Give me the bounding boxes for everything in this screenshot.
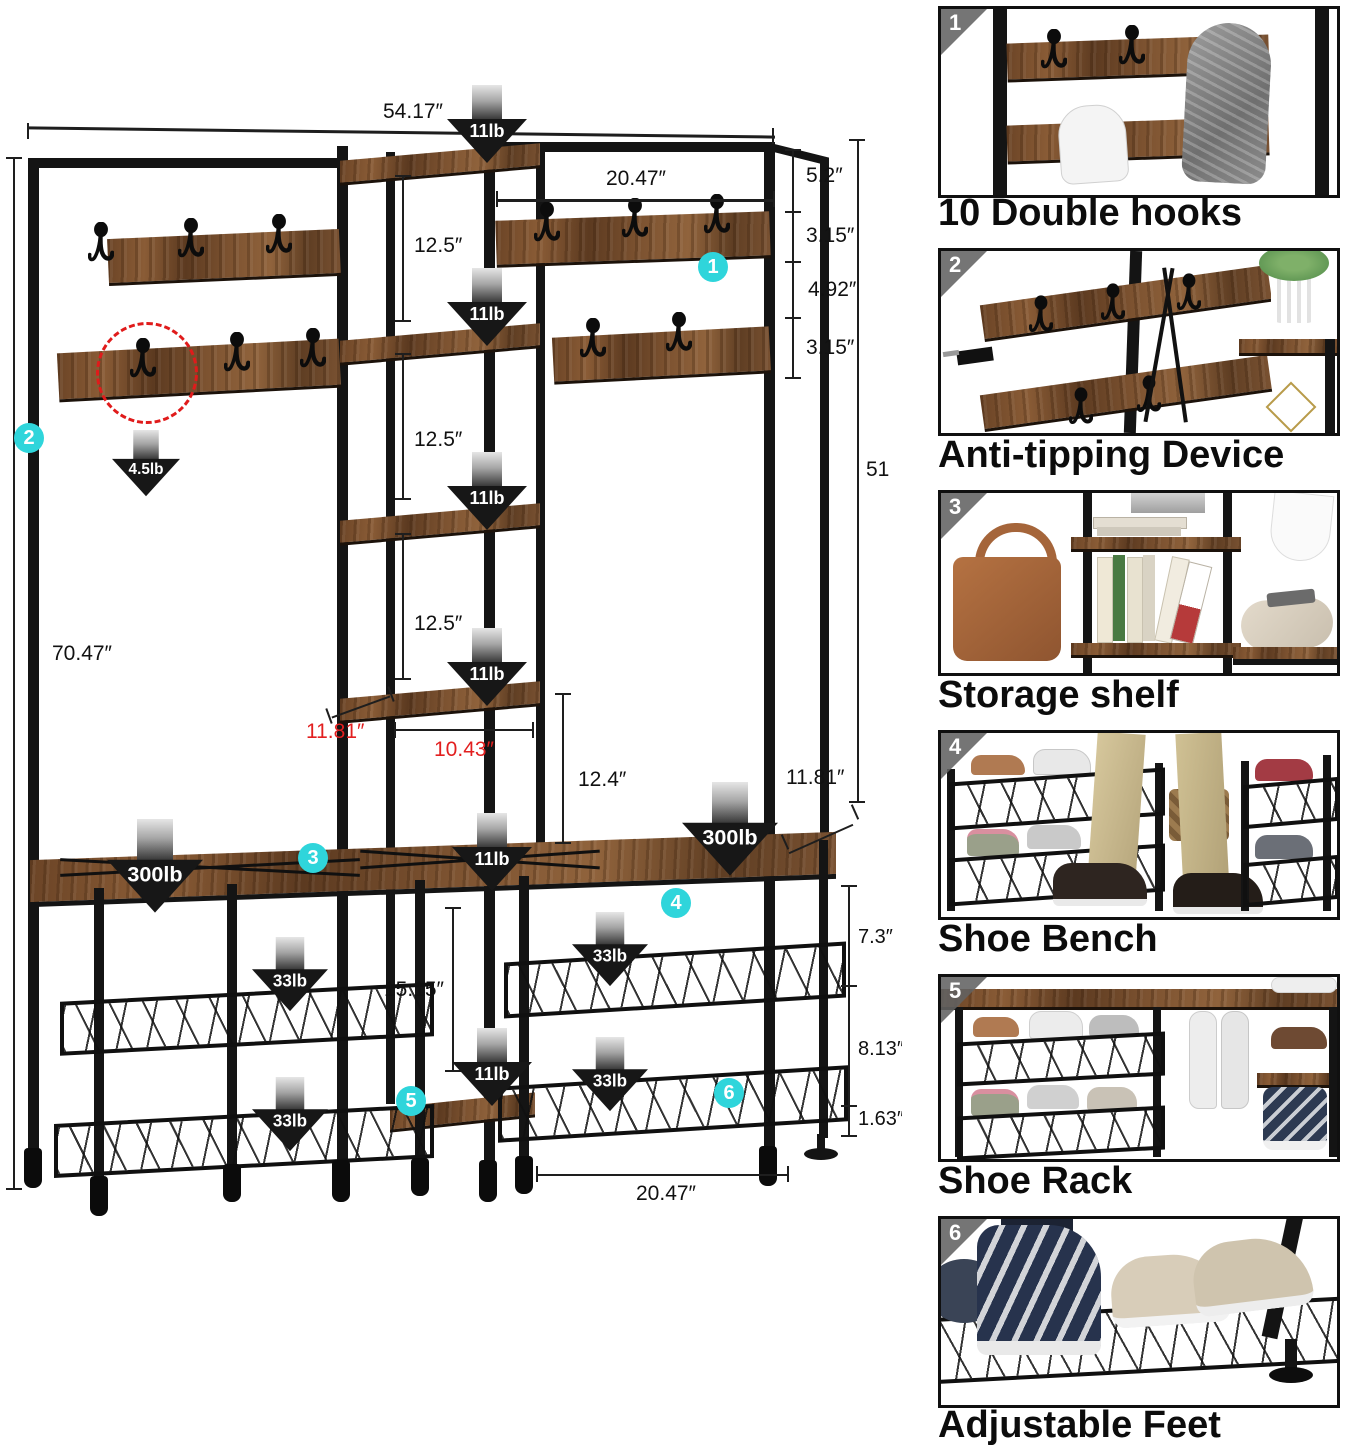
- load-label: 11lb: [447, 304, 527, 325]
- load-arrow-hook: 4.5lb: [112, 430, 180, 498]
- dim-tick: [27, 123, 29, 139]
- photo-side-shelf: [1239, 339, 1337, 356]
- dim-hook-gap: 4.92″: [808, 278, 856, 302]
- dim-tick: [849, 139, 865, 141]
- photo-wire-shelf: [957, 1032, 1165, 1087]
- coat-hook-icon: [1101, 283, 1125, 327]
- dim-tick: [536, 1166, 538, 1182]
- left-wire-shelf-lower: [54, 1104, 434, 1178]
- dim-tick: [841, 1135, 857, 1137]
- feature-card-anti-tipping: 2: [938, 248, 1340, 436]
- dim-tick: [785, 377, 801, 379]
- dim-tick: [395, 498, 411, 500]
- dim-tick: [6, 157, 22, 159]
- card-corner-badge: [941, 9, 987, 55]
- dim-tick: [787, 1166, 789, 1182]
- right-back-post: [820, 158, 829, 842]
- arrow-shaft: [472, 268, 502, 304]
- photo-deco-diamond: [1266, 382, 1317, 433]
- feature-card-shoe-rack: 5: [938, 974, 1340, 1162]
- dim-bench-seg-top: 7.3″: [858, 926, 902, 949]
- photo-shoe: [1027, 825, 1081, 849]
- photo-wire-shelf: [1243, 855, 1339, 907]
- arrow-shaft: [712, 782, 748, 825]
- feature-card-double-hooks: 1: [938, 6, 1340, 198]
- dim-tick: [395, 353, 411, 355]
- dim-line-shelf-gap-2: [402, 354, 404, 500]
- photo-flat-book: [1097, 527, 1181, 536]
- photo-side-shelf: [1257, 1073, 1337, 1088]
- dim-line-hook-offsets: [792, 150, 794, 378]
- photo-boot: [1221, 1011, 1249, 1109]
- dim-bench-width: 20.47″: [596, 1182, 736, 1206]
- feature-card-storage-shelf: 3: [938, 490, 1340, 676]
- load-arrow-wire-shelf: 33lb: [572, 912, 648, 988]
- dim-shelf-gap-2: 12.5″: [414, 428, 462, 452]
- arrow-shaft: [472, 628, 502, 664]
- card-number: 2: [949, 252, 961, 278]
- foot: [411, 1158, 429, 1196]
- photo-hanging-cloth: [1268, 490, 1335, 564]
- dim-tick: [841, 1105, 857, 1107]
- photo-shelf-board: [1071, 537, 1241, 552]
- coat-hook-icon: [1119, 25, 1145, 71]
- dim-shelf-gap-1: 12.5″: [414, 234, 462, 258]
- photo-shoe: [971, 1089, 1019, 1116]
- dim-tick: [785, 149, 801, 151]
- dim-line-shelf-gap-1: [402, 176, 404, 322]
- arrow-shaft: [596, 912, 625, 946]
- dim-tick: [395, 533, 411, 535]
- dim-tick: [772, 128, 774, 144]
- coat-hook-icon: [1029, 295, 1053, 339]
- card-corner-badge: [941, 733, 987, 779]
- arrow-shaft: [596, 1037, 625, 1071]
- dim-line-overall-height: [13, 158, 15, 1190]
- card-number: 3: [949, 494, 961, 520]
- coat-hook-icon: [622, 198, 648, 244]
- photo-person-leg: [1175, 732, 1228, 876]
- load-arrow-wire-shelf: 33lb: [572, 1037, 648, 1113]
- dim-tick: [849, 801, 865, 803]
- photo-pillow: [1271, 977, 1337, 993]
- tower-back-left-post: [386, 152, 395, 1104]
- dim-bench-depth: 11.81″: [786, 766, 844, 790]
- coat-hook-icon: [88, 222, 114, 268]
- arrow-shaft: [477, 1028, 507, 1064]
- photo-adjustable-foot-disc: [1269, 1367, 1313, 1383]
- dim-overall-height: 70.47″: [52, 642, 112, 666]
- dim-tick: [395, 175, 411, 177]
- feature-caption-adjustable-feet: Adjustable Feet: [938, 1404, 1342, 1447]
- dim-tick: [785, 261, 801, 263]
- load-label: 4.5lb: [112, 461, 180, 479]
- photo-speaker: [1131, 493, 1205, 513]
- dim-line-bench-width: [537, 1174, 788, 1176]
- foot: [479, 1160, 497, 1202]
- arrow-shaft: [477, 813, 507, 849]
- dim-hook-board-a: 3.15″: [806, 224, 854, 248]
- load-label: 33lb: [572, 946, 648, 966]
- photo-book-spine: [1113, 555, 1125, 641]
- photo-book-spine: [1143, 555, 1155, 641]
- photo-shoe: [1033, 749, 1091, 775]
- photo-book-spine: [1097, 557, 1113, 643]
- photo-wire-shelf: [957, 1106, 1165, 1161]
- foot: [24, 1148, 42, 1188]
- right-wire-shelf-lower: [498, 1065, 848, 1142]
- photo-hanging-towel: [1056, 103, 1129, 186]
- feature-caption-shoe-bench: Shoe Bench: [938, 918, 1342, 961]
- load-label: 33lb: [252, 971, 328, 991]
- dim-tick: [394, 722, 396, 738]
- coat-hook-icon: [666, 312, 692, 358]
- foot: [90, 1176, 108, 1216]
- callout-badge-4: 4: [661, 888, 691, 918]
- photo-shoe: [967, 829, 1019, 856]
- dim-right-section-width: 20.47″: [566, 167, 706, 191]
- card-corner-badge: [941, 1219, 987, 1265]
- card-corner-badge: [941, 493, 987, 539]
- load-arrow-shelf: 11lb: [452, 1028, 532, 1108]
- coat-hook-icon: [224, 332, 250, 378]
- photo-frame-rail: [1233, 659, 1337, 665]
- dim-tower-inner-width: 10.43″: [398, 738, 530, 762]
- photo-shoe: [1255, 759, 1313, 781]
- card-number: 5: [949, 978, 961, 1004]
- left-hook-board-top: [107, 229, 341, 286]
- feature-caption-double-hooks: 10 Double hooks: [938, 192, 1342, 235]
- dim-line-shelf-gap-3: [402, 534, 404, 680]
- dim-bench-seg-mid: 8.13″: [858, 1038, 902, 1061]
- callout-badge-1: 1: [698, 252, 728, 282]
- hook-highlight-circle: [96, 322, 198, 424]
- arrow-shaft: [133, 430, 159, 461]
- dim-tick: [841, 885, 857, 887]
- load-label: 11lb: [447, 488, 527, 509]
- coat-hook-icon: [580, 318, 606, 364]
- dim-top-gap: 5.2″: [806, 164, 843, 188]
- right-wire-shelf-upper: [504, 942, 846, 1019]
- load-arrow-bench: 300lb: [107, 819, 203, 915]
- coat-hook-icon: [300, 328, 326, 374]
- foot: [332, 1160, 350, 1202]
- callout-badge-2: 2: [14, 423, 44, 453]
- arrow-shaft: [472, 452, 502, 488]
- load-label: 11lb: [447, 121, 527, 142]
- coat-hook-icon: [534, 202, 560, 248]
- photo-handbag: [953, 557, 1061, 661]
- photo-hook-board: [980, 265, 1272, 342]
- photo-frame-post: [1325, 339, 1335, 433]
- photo-shoe: [1027, 1085, 1079, 1109]
- load-label: 33lb: [572, 1071, 648, 1091]
- photo-shelf-board: [1071, 643, 1241, 658]
- dim-line-right-height: [857, 140, 859, 803]
- coat-hook-icon: [1041, 29, 1067, 75]
- arrow-shaft: [276, 1077, 305, 1111]
- photo-wall-bracket: [956, 347, 994, 366]
- photo-boot: [1189, 1011, 1217, 1109]
- card-corner-badge: [941, 251, 987, 297]
- left-top-rail: [28, 158, 340, 168]
- dim-tick: [6, 1188, 22, 1190]
- photo-sneaker: [1263, 1087, 1327, 1150]
- load-label: 300lb: [107, 862, 203, 887]
- load-arrow-wire-shelf: 33lb: [252, 937, 328, 1013]
- photo-plant-leaves: [1259, 248, 1329, 281]
- dim-tick: [496, 191, 498, 207]
- photo-person-leg: [1088, 731, 1145, 870]
- dim-line-right-width: [497, 199, 775, 202]
- dim-tick: [395, 320, 411, 322]
- feature-caption-storage-shelf: Storage shelf: [938, 674, 1342, 717]
- card-number: 6: [949, 1220, 961, 1246]
- foot: [515, 1156, 533, 1194]
- photo-shoe: [1271, 1027, 1327, 1049]
- coat-hook-icon: [1177, 273, 1201, 317]
- feature-caption-shoe-rack: Shoe Rack: [938, 1160, 1342, 1203]
- left-post: [28, 158, 39, 1152]
- foot: [223, 1164, 241, 1202]
- photo-plant-pot: [1271, 275, 1317, 323]
- arrow-shaft: [472, 85, 502, 121]
- photo-shoe: [1255, 835, 1313, 859]
- card-corner-badge: [941, 977, 987, 1023]
- photo-rack-leg: [1329, 1007, 1337, 1157]
- dim-bench-to-bottom-shelf: 15.15″: [360, 978, 444, 1002]
- dim-hook-board-b: 3.15″: [806, 336, 854, 360]
- coat-hook-icon: [178, 218, 204, 264]
- dim-line-bench-heights: [848, 886, 850, 1137]
- load-arrow-shelf: 11lb: [447, 452, 527, 532]
- dim-tick: [395, 678, 411, 680]
- feature-caption-anti-tipping: Anti-tipping Device: [938, 434, 1342, 477]
- dim-tick: [785, 211, 801, 213]
- load-arrow-shelf: 11lb: [447, 85, 527, 165]
- load-arrow-wire-shelf: 33lb: [252, 1077, 328, 1153]
- photo-hightop-sneaker: [977, 1225, 1101, 1355]
- arrow-shaft: [276, 937, 305, 971]
- foot: [759, 1146, 777, 1186]
- dim-tick: [773, 191, 775, 207]
- dim-tick: [445, 907, 461, 909]
- load-label: 300lb: [682, 825, 778, 850]
- dim-tick: [841, 985, 857, 987]
- load-arrow-bench: 300lb: [682, 782, 778, 878]
- dim-tick: [532, 722, 534, 738]
- dim-tick: [555, 693, 571, 695]
- load-label: 11lb: [452, 1064, 532, 1085]
- card-number: 4: [949, 734, 961, 760]
- callout-badge-5: 5: [396, 1086, 426, 1116]
- arrow-shaft: [137, 819, 173, 862]
- hall-tree-dimension-infographic: 54.17″ 20.47″ 5.2″ 3.15″ 4.92″ 3.15″ 51 …: [0, 0, 1346, 1450]
- dim-tick: [555, 842, 571, 844]
- load-arrow-shelf: 11lb: [447, 268, 527, 348]
- photo-wire-shelf: [1243, 777, 1339, 829]
- dim-line-overall-width: [28, 126, 775, 138]
- photo-frame-post: [993, 9, 1007, 195]
- load-label: 33lb: [252, 1111, 328, 1131]
- dim-tower-depth: 11.81″: [306, 720, 364, 744]
- feature-card-shoe-bench: 4: [938, 730, 1340, 920]
- load-arrow-shelf: 11lb: [447, 628, 527, 708]
- callout-badge-3: 3: [298, 843, 328, 873]
- dim-tick: [851, 804, 859, 819]
- adjustable-foot-disc: [804, 1148, 838, 1160]
- coat-hook-icon: [266, 214, 292, 260]
- photo-shoe: [1053, 863, 1147, 906]
- photo-book-spine: [1127, 557, 1143, 643]
- card-number: 1: [949, 10, 961, 36]
- photo-shoe: [1029, 1011, 1083, 1039]
- dim-bench-seg-bottom: 1.63″: [858, 1108, 902, 1131]
- photo-frame-post: [1315, 9, 1329, 195]
- dim-shelf-to-bench: 12.4″: [578, 768, 626, 792]
- dim-line-shelf-to-bench: [562, 694, 564, 844]
- photo-hanging-scarf: [1181, 21, 1273, 185]
- dim-line-tower-width: [395, 729, 533, 731]
- feature-card-adjustable-feet: 6: [938, 1216, 1340, 1408]
- load-label: 11lb: [452, 849, 532, 870]
- coat-hook-icon: [1069, 387, 1093, 431]
- dim-right-height: 51: [866, 458, 889, 482]
- load-arrow-shelf: 11lb: [452, 813, 532, 893]
- dim-tick: [785, 317, 801, 319]
- load-label: 11lb: [447, 664, 527, 685]
- callout-badge-6: 6: [714, 1078, 744, 1108]
